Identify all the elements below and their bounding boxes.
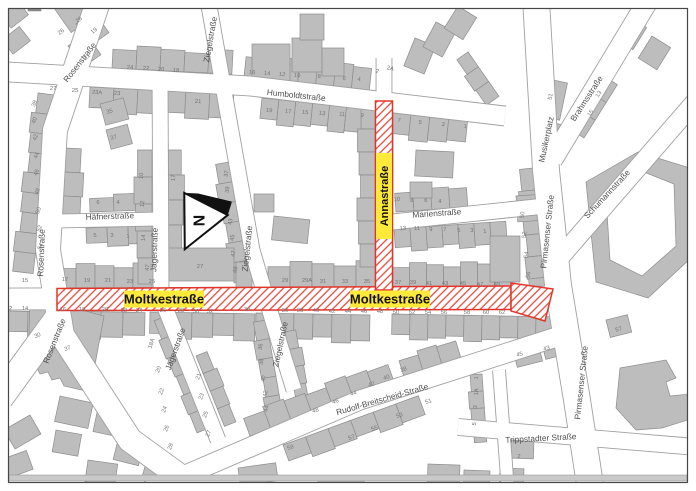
house-number: 48: [377, 309, 383, 315]
house-number: 6: [96, 200, 99, 206]
house-number: 52: [409, 310, 415, 316]
building: [86, 227, 108, 243]
house-number: 44: [345, 309, 352, 315]
house-number: 56: [441, 310, 447, 316]
house-number: 1: [474, 376, 480, 380]
building: [464, 315, 482, 341]
building: [415, 150, 454, 178]
house-number: 15: [22, 278, 28, 284]
building: [63, 172, 83, 197]
house-number: 28: [178, 308, 184, 314]
house-number: 7: [443, 227, 447, 233]
house-number: 22: [143, 66, 150, 72]
building: [169, 150, 182, 175]
house-number: 5: [93, 233, 96, 239]
house-number: 8: [317, 74, 321, 80]
house-number: 38: [259, 358, 266, 365]
house-number: 1: [483, 229, 487, 235]
building: [427, 117, 448, 142]
house-number: 3: [441, 122, 445, 128]
house-number: 37: [224, 170, 231, 177]
house-number: 49: [233, 266, 240, 273]
house-number: 6: [342, 76, 346, 82]
house-number: 16: [249, 70, 256, 77]
building: [446, 315, 464, 336]
house-number: 17: [171, 174, 178, 181]
house-number: 43: [228, 218, 235, 225]
house-number: 17: [62, 277, 68, 283]
house-number: 11: [339, 112, 346, 119]
house-number: 42: [263, 390, 270, 397]
house-number: 45: [460, 281, 466, 287]
house-number: 19: [84, 278, 90, 284]
clipped-building-strip: [9, 475, 687, 481]
house-number: 9: [429, 227, 433, 233]
house-number: 36: [258, 343, 265, 350]
house-number: 3: [470, 228, 474, 234]
house-number: 20: [158, 67, 165, 73]
building: [327, 105, 347, 133]
house-number: 32: [207, 309, 213, 315]
house-number: 6: [424, 198, 428, 204]
building: [52, 430, 81, 456]
house-number: 1A: [474, 388, 481, 396]
building: [351, 67, 371, 91]
house-number: 1: [463, 124, 467, 130]
building: [357, 129, 375, 152]
house-number: 13: [400, 226, 407, 232]
house-number: 3: [110, 233, 113, 239]
building: [134, 177, 152, 204]
house-number: 50: [393, 310, 399, 316]
north-arrow-letter: N: [192, 215, 209, 227]
street-plate-annastrasse: Annastraße: [376, 153, 392, 239]
building: [410, 182, 432, 198]
house-number: 19: [266, 108, 273, 115]
house-number: 27: [50, 86, 57, 92]
building: [169, 200, 184, 225]
house-number: 18: [173, 68, 180, 74]
street-plate-moltkestrasse-east: Moltkestraße: [350, 291, 430, 308]
house-number: 33: [342, 279, 348, 285]
building: [322, 48, 344, 76]
house-number: 2: [517, 454, 520, 460]
building: [169, 225, 182, 250]
house-number: 16: [60, 307, 66, 313]
house-number: 56: [526, 271, 533, 278]
building: [290, 262, 312, 289]
house-number: 9: [360, 113, 364, 119]
street-label-rosenstrasse-mid: Rosenstraße: [35, 229, 47, 277]
building: [76, 264, 95, 288]
house-number: 39: [410, 280, 416, 286]
house-number: 23: [127, 279, 133, 285]
house-number: 20: [102, 307, 108, 313]
building: [300, 14, 324, 40]
house-number: 21: [195, 99, 202, 105]
house-number: 47: [145, 264, 152, 271]
house-number: 14: [22, 306, 29, 312]
building: [184, 92, 209, 119]
house-number: 15: [302, 110, 309, 117]
house-number: 37: [395, 280, 401, 286]
house-number: 46: [361, 309, 367, 315]
house-number: 1: [126, 234, 129, 240]
street-surface: [160, 74, 161, 288]
house-number: 24: [127, 65, 135, 71]
building: [292, 38, 322, 72]
house-number: 24: [136, 308, 143, 314]
site-plan-map: RosenstraßeZiegelstraßeHumboldtstraßeRos…: [0, 0, 696, 491]
building: [254, 194, 274, 212]
house-number: 50: [520, 211, 527, 218]
house-number: 35: [364, 279, 370, 285]
building: [359, 152, 375, 175]
house-number: 25: [72, 88, 79, 94]
street-label-haefnerstrasse: Häfnerstraße: [86, 210, 135, 222]
house-number: 43: [442, 281, 448, 287]
house-number: 40: [313, 308, 319, 314]
building: [357, 198, 376, 221]
house-number: 31: [320, 279, 326, 285]
house-number: 12: [279, 72, 286, 79]
house-number: 7: [397, 118, 401, 124]
building: [490, 236, 520, 282]
house-number: 5: [418, 120, 422, 126]
house-number: 36: [282, 308, 288, 314]
house-number: 11: [414, 226, 420, 232]
street-label-annastrasse: Annastraße: [379, 166, 391, 227]
building: [65, 148, 82, 173]
building: [13, 251, 36, 273]
house-number: 47: [477, 282, 483, 288]
building: [28, 0, 41, 11]
building: [392, 314, 410, 335]
street-label-moltkestrasse-east: Moltkestraße: [350, 292, 430, 307]
house-number: 52: [522, 231, 529, 238]
house-number: 49: [494, 282, 500, 288]
house-number: 23A: [92, 90, 103, 97]
house-number: 47: [231, 250, 238, 257]
building: [123, 312, 145, 335]
building: [428, 315, 446, 339]
street-plate-moltkestrasse-west: Moltkestraße: [124, 291, 204, 308]
house-number: 10: [294, 73, 301, 80]
building: [234, 313, 255, 341]
building: [361, 175, 376, 198]
house-number: 26: [160, 308, 166, 314]
house-number: 45: [230, 234, 237, 241]
map-canvas: RosenstraßeZiegelstraßeHumboldtstraßeRos…: [0, 0, 696, 491]
house-number: 22: [121, 308, 127, 314]
house-number: 5: [472, 422, 478, 426]
house-number: 38: [297, 308, 303, 314]
house-number: 10: [139, 172, 146, 179]
building: [192, 313, 213, 338]
building: [446, 119, 467, 142]
house-number: 40: [261, 375, 268, 382]
house-number: 23: [114, 91, 121, 97]
house-number: 3: [473, 405, 479, 409]
house-number: 13: [319, 111, 326, 118]
house-number: 60: [483, 310, 489, 316]
building: [331, 314, 350, 343]
building: [351, 315, 370, 341]
house-number: 17: [285, 109, 292, 116]
building: [410, 314, 428, 340]
building: [449, 188, 468, 209]
house-number: 21: [105, 278, 111, 284]
building: [90, 198, 114, 212]
building: [213, 313, 234, 335]
house-number: 30: [193, 309, 199, 315]
building: [500, 316, 518, 338]
building: [313, 314, 332, 337]
house-number: 39: [225, 186, 232, 193]
house-number: 29: [282, 278, 288, 284]
house-number: 62: [499, 310, 505, 316]
house-number: 27: [197, 264, 203, 270]
house-number: 18: [79, 307, 85, 313]
house-number: 58: [464, 310, 470, 316]
house-number: 42: [329, 309, 335, 315]
house-number: 8: [410, 198, 414, 204]
building: [101, 312, 123, 338]
building: [359, 221, 376, 244]
house-number: 29A: [302, 278, 312, 284]
building: [271, 216, 309, 244]
house-number: 5: [457, 228, 461, 234]
building: [482, 316, 500, 340]
house-number: 25: [149, 279, 155, 285]
street-label-moltkestrasse-west: Moltkestraße: [124, 292, 204, 307]
house-number: 10: [394, 197, 401, 203]
house-number: 12: [140, 200, 147, 207]
building: [95, 266, 114, 288]
building: [360, 244, 375, 267]
house-number: 34: [244, 307, 251, 313]
building: [13, 231, 38, 254]
house-number: 41: [426, 281, 432, 287]
house-number: 54: [425, 310, 432, 316]
